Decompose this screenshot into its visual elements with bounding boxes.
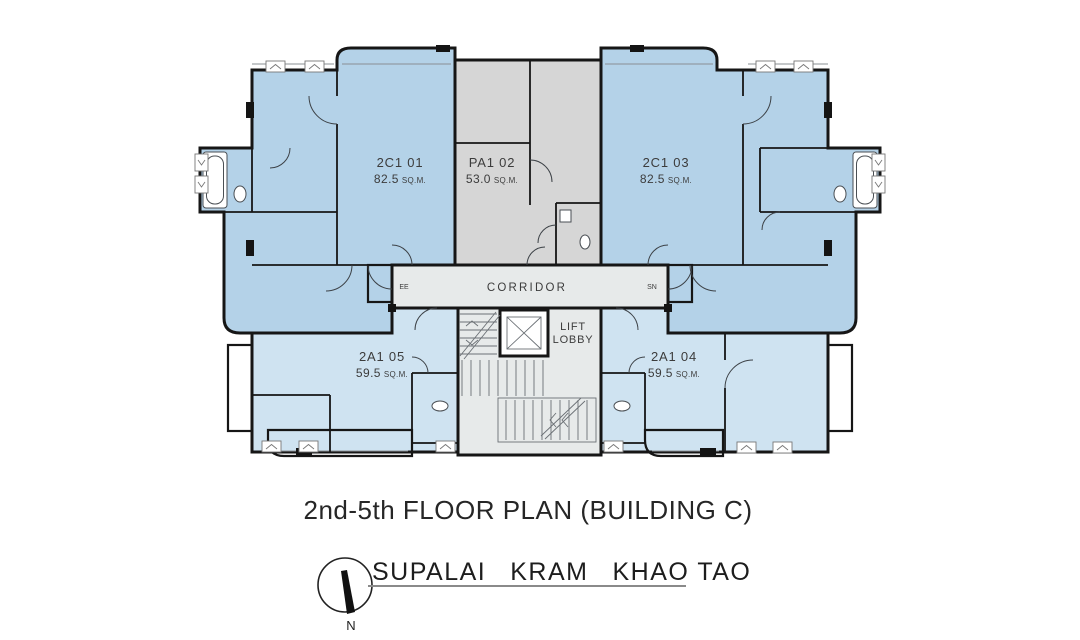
side-strip-left (228, 345, 252, 431)
unit-pa1-02-code: PA1 02 (469, 155, 515, 170)
unit-2c1-03-code: 2C1 03 (643, 155, 690, 170)
ee-label: EE (399, 284, 409, 291)
floor-plan-drawing: 2C1 01 82.5SQ.M. PA1 02 53.0SQ.M. 2C1 03… (0, 0, 1080, 640)
lift-lobby-label-1: LIFT (560, 321, 586, 333)
floor-plan-page: 2C1 01 82.5SQ.M. PA1 02 53.0SQ.M. 2C1 03… (0, 0, 1080, 640)
project-name-word-1: SUPALAI (372, 558, 486, 587)
side-strip-right (828, 345, 852, 431)
corridor-label: CORRIDOR (487, 282, 567, 294)
brand-underline (368, 585, 686, 587)
unit-2c1-01-code: 2C1 01 (377, 155, 424, 170)
project-name-word-3: KHAO TAO (612, 558, 751, 587)
plan-title: 2nd-5th FLOOR PLAN (BUILDING C) (0, 495, 1056, 526)
toilet-right (834, 186, 846, 202)
sn-label: SN (647, 284, 657, 291)
unit-2a1-04-code: 2A1 04 (651, 349, 697, 364)
toilet-left (234, 186, 246, 202)
lift-lobby-label-2: LOBBY (553, 334, 594, 346)
project-name: SUPALAI KRAM KHAO TAO (372, 558, 751, 587)
lift-shaft (500, 310, 548, 356)
project-name-word-2: KRAM (510, 558, 588, 587)
compass-north-label: N (346, 618, 355, 633)
unit-2a1-05-code: 2A1 05 (359, 349, 405, 364)
compass-icon: N (314, 554, 376, 638)
